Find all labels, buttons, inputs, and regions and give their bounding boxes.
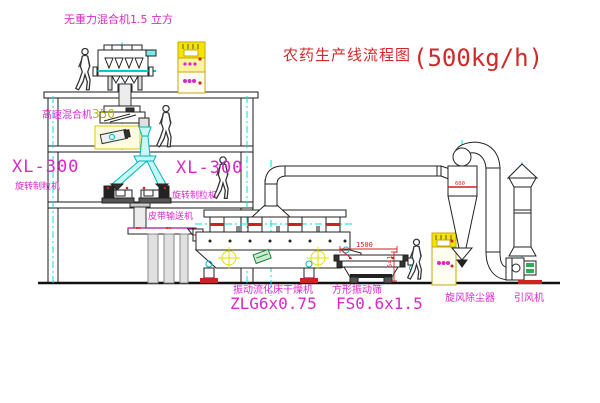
exhaust-downcomer [486,168,500,252]
cyclone-label: 旋风除尘器 [445,294,495,304]
cyclone-diameter-dim: 600 [455,181,465,187]
granulator-left [102,184,134,203]
fan-label: 引风机 [514,294,544,304]
worker-figure-top-floor [76,48,90,89]
control-cabinet-lower [432,233,456,285]
screen-length-dim: 1500 [356,241,373,249]
cyclone-separator: 600 [448,142,510,280]
granulator-right-name-label: 旋转制粒机 [172,192,217,201]
second-floor-slab [48,146,253,152]
diagram-title: 农药生产线流程图(500kg/h) [283,46,543,70]
pesticide-line-flow-diagram: 1500 541 600 [0,0,600,403]
screen-model-label: FS0.6x1.5 [336,296,423,312]
granulator-left-model-label: XL-300 [12,159,79,176]
worker-figure-second-floor [157,105,171,146]
top-floor-slab [44,92,258,98]
granulator-right-model-label: XL-300 [176,160,243,177]
dryer-model-label: ZLG6x0.75 [230,296,317,312]
high-speed-mixer-name: 高速混合机 [42,110,92,121]
gravity-mixer-label: 无重力混合机1.5 立方 [64,14,173,25]
exhaust-stack [508,164,537,256]
control-cabinet-upper [178,42,205,93]
high-speed-mixer-model: 350 [92,107,115,121]
induced-draft-fan [506,258,542,284]
belt-conveyor-label: 皮带输送机 [148,213,193,222]
vibrating-screen: 1500 541 [334,241,417,283]
granulator-discharge-pipe [130,203,150,228]
high-speed-mixer-label: 高速混合机350 [42,108,115,121]
title-text: 农药生产线流程图 [283,46,411,64]
exhaust-duct [252,166,459,217]
title-capacity: (500kg/h) [413,44,543,72]
fluid-bed-dryer [193,210,361,283]
granulator-right [139,184,171,203]
granulator-left-name-label: 旋转制粒机 [15,183,60,192]
screen-height-dim: 541 [386,255,394,268]
